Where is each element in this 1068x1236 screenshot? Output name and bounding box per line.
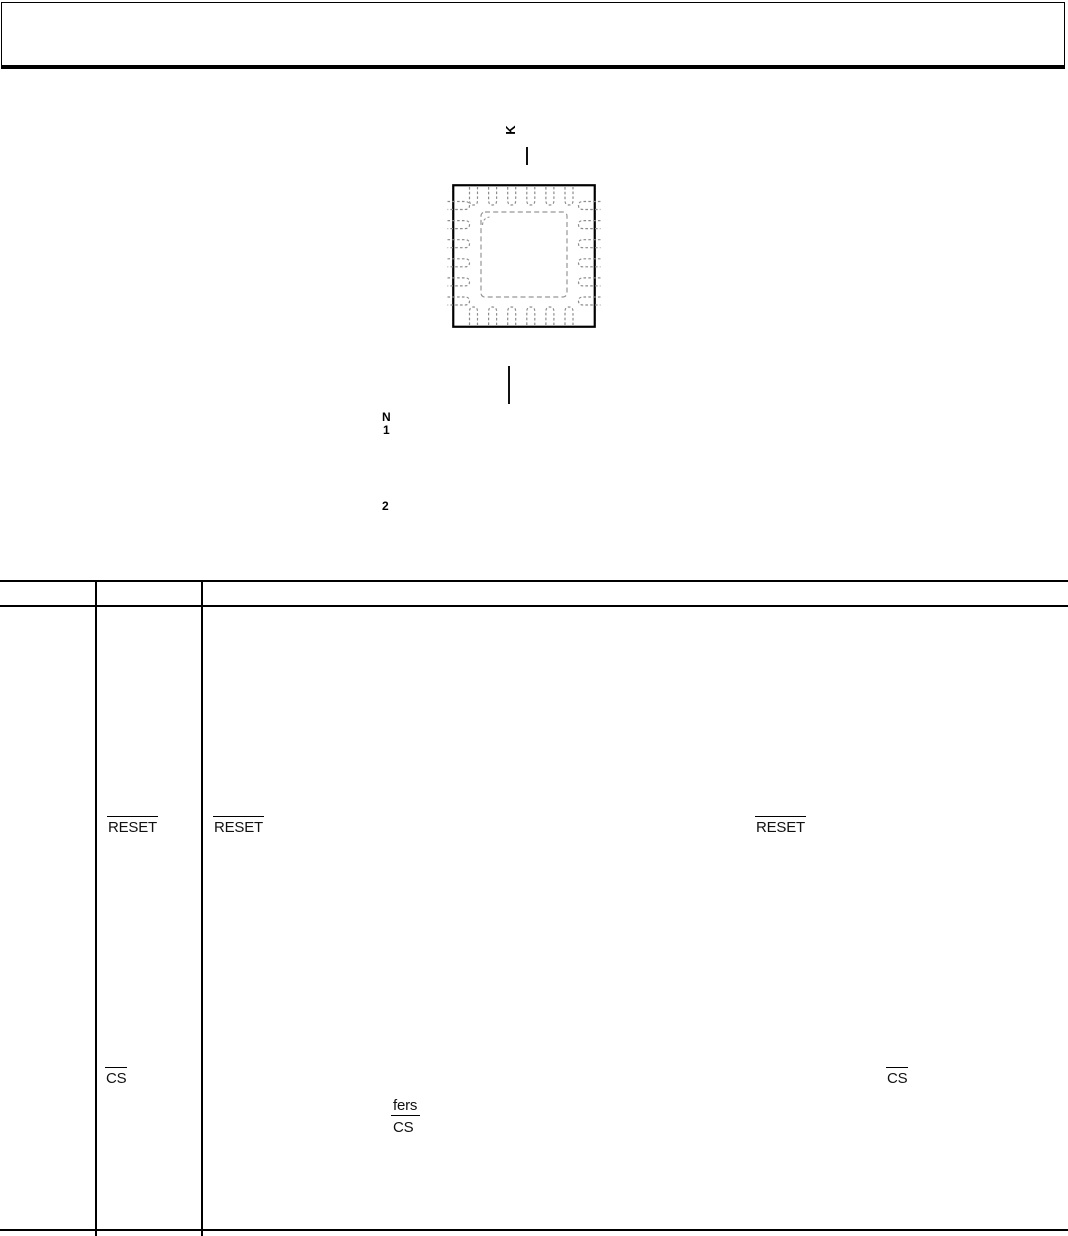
reset-pin-mnemonic: RESET <box>107 816 158 836</box>
cs-pin-mnemonic: CS <box>105 1067 127 1087</box>
pin-table-header-rule <box>0 605 1068 607</box>
cs-description-fragment-stack: fers CS <box>391 1096 420 1137</box>
reset-pin-mnemonic-text: RESET <box>107 816 158 836</box>
pin-table-column-divider-1 <box>95 580 97 1236</box>
cs-description-fragment-line1: fers <box>391 1097 417 1114</box>
pin-table-column-divider-2 <box>201 580 203 1236</box>
cs-description-fragment-line2: CS <box>391 1115 420 1137</box>
package-outline <box>453 185 595 327</box>
leader-line-bottom <box>508 366 510 404</box>
notes-heading-fragment: N <box>382 411 391 423</box>
reset-description-lead-text: RESET <box>213 816 264 836</box>
rotated-pin-label-k: K <box>504 120 518 140</box>
leader-line-top <box>526 147 528 165</box>
reset-description-inline-text: RESET <box>755 816 806 836</box>
qfn-package-diagram <box>452 184 596 328</box>
note-number-1: 1 <box>383 424 390 436</box>
cs-pin-mnemonic-text: CS <box>105 1067 127 1087</box>
cs-description-inline-mnemonic: CS <box>886 1067 908 1087</box>
header-box <box>1 2 1065 69</box>
cs-description-inline-text: CS <box>886 1067 908 1087</box>
reset-description-inline-mnemonic: RESET <box>755 816 806 836</box>
pin-table-top-rule <box>0 580 1068 582</box>
pin-table-bottom-rule <box>0 1229 1068 1231</box>
reset-description-lead-mnemonic: RESET <box>213 816 264 836</box>
note-number-2: 2 <box>382 500 389 512</box>
